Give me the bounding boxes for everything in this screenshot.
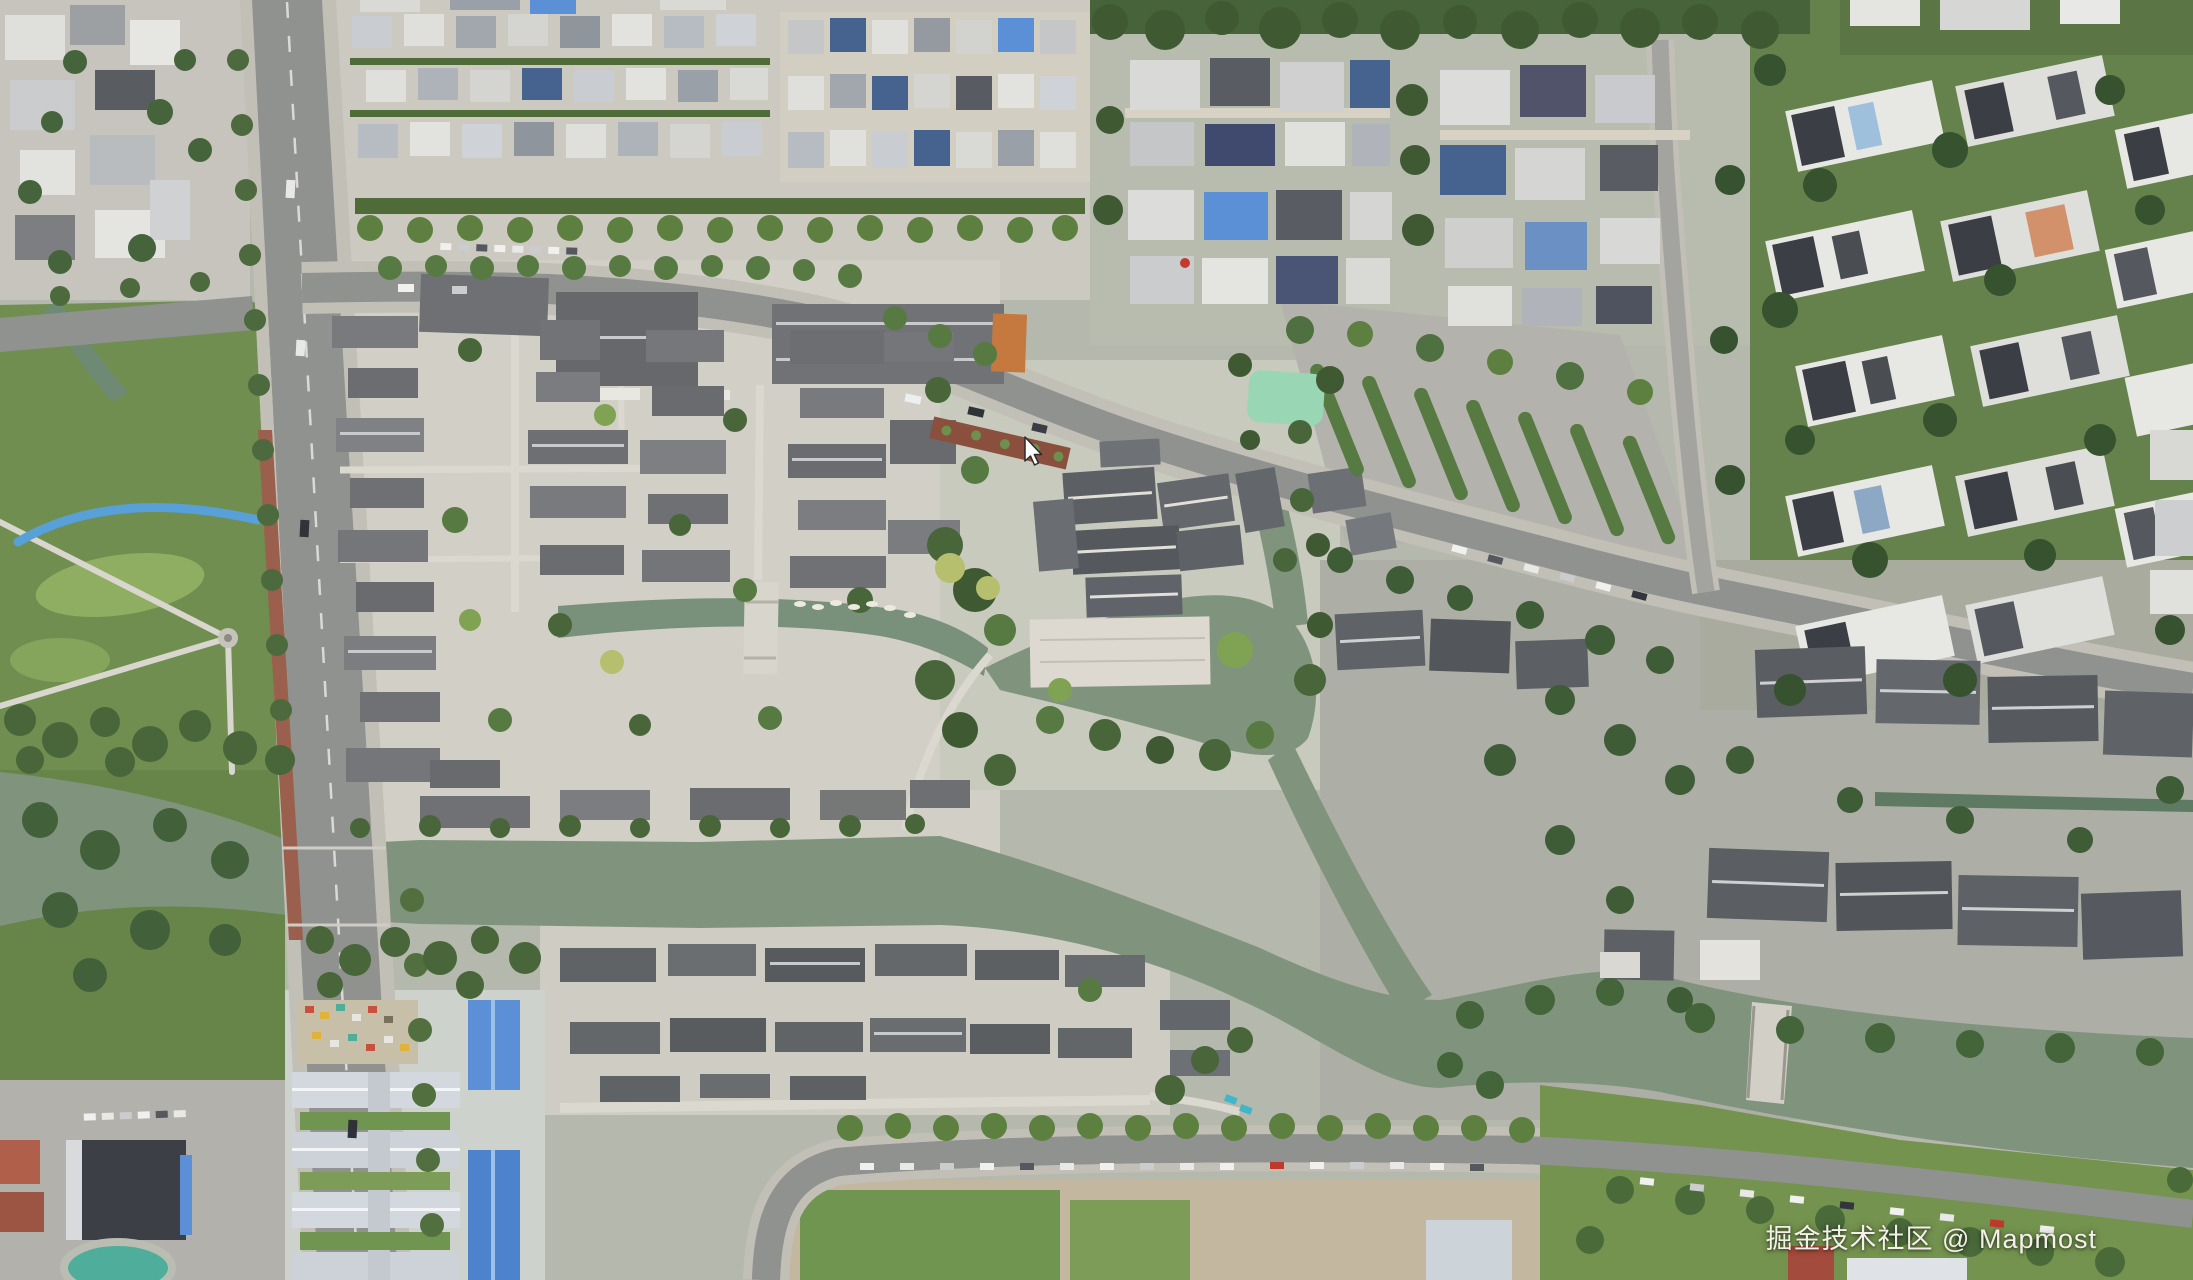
green-pond (1246, 369, 1325, 426)
red-umbrella (1180, 258, 1190, 268)
south-road-north-trees (837, 1113, 1535, 1143)
oval-pool (64, 1242, 172, 1280)
villa-rows-mid (780, 12, 1090, 182)
temple-plaza (1029, 616, 1210, 687)
screen: { "watermark": { "text": "掘金技术社区 @ Mapmo… (0, 0, 2193, 1280)
watermark: 掘金技术社区 @ Mapmost (1766, 1217, 2097, 1256)
street-hedge-trees (357, 215, 1078, 243)
map-viewport[interactable]: 掘金技术社区 @ Mapmost (0, 0, 2193, 1280)
orange-roof-building (991, 313, 1027, 372)
map-canvas[interactable] (0, 0, 2193, 1280)
